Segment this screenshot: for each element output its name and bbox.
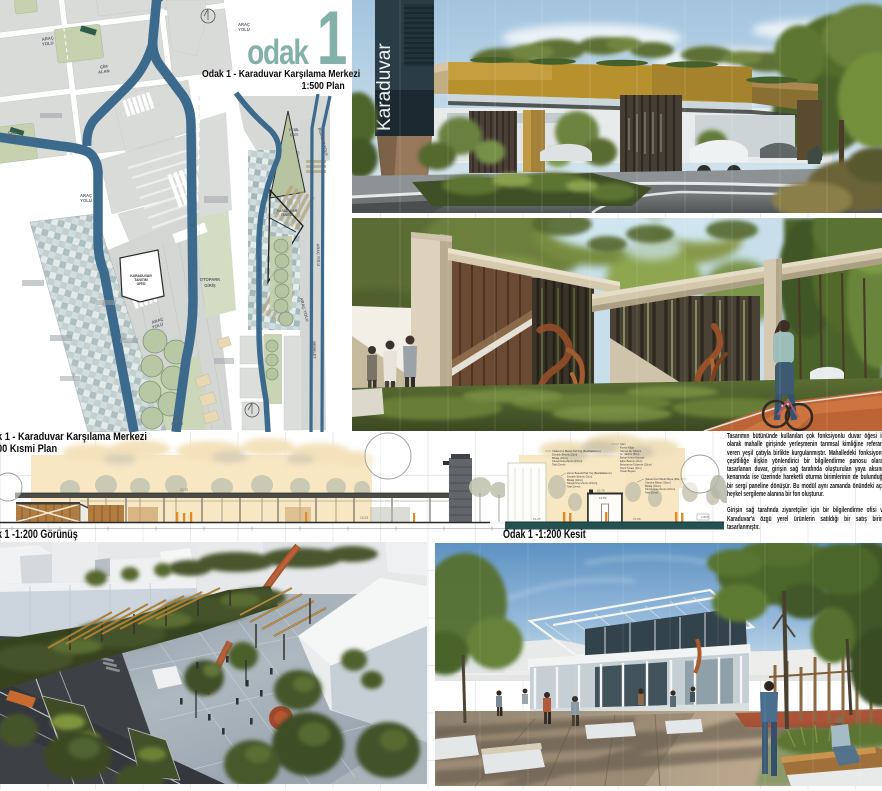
svg-text:10.75: 10.75: [597, 489, 605, 493]
svg-text:Homo Beauld Plak Taş (Beslldak: Homo Beauld Plak Taş (Beslldaklanmı): [567, 471, 612, 475]
svg-text:Isı Yalıtımı (5cm): Isı Yalıtımı (5cm): [620, 452, 639, 456]
svg-text:Süzme Su Yalıtımı: Süzme Su Yalıtımı: [620, 449, 642, 453]
svg-text:OFİSİ: OFİSİ: [137, 282, 146, 286]
svg-text:15.88: 15.88: [633, 517, 641, 521]
svg-text:Donatılı Betonu (2cm): Donatılı Betonu (2cm): [552, 452, 577, 456]
svg-text:Betonarme Döşeme (15cm): Betonarme Döşeme (15cm): [620, 462, 652, 466]
svg-text:2.865: 2.865: [701, 515, 709, 519]
svg-text:Eğim Betonu (4cm): Eğim Betonu (4cm): [620, 459, 642, 463]
svg-text:(Sanat Üzeri Metln Boya (RAL 7: (Sanat Üzeri Metln Boya (RAL 7037): [645, 477, 687, 481]
svg-text:Blokaj (10cm): Blokaj (10cm): [645, 484, 661, 488]
svg-text:ALAN: ALAN: [171, 421, 183, 426]
svg-text:Tabii Zemin: Tabii Zemin: [567, 485, 581, 489]
svg-text:16.25: 16.25: [533, 517, 541, 521]
svg-text:Sıkıştırılmış Zemin (15cm): Sıkıştırılmış Zemin (15cm): [567, 481, 597, 485]
svg-text:Buhar Kesici Katman: Buhar Kesici Katman: [620, 456, 645, 460]
svg-text:Oturtma Beton (10cm): Oturtma Beton (10cm): [645, 480, 671, 484]
svg-text:Kumlu Kağıt: Kumlu Kağıt: [620, 445, 634, 449]
svg-text:16.25: 16.25: [20, 516, 28, 520]
svg-text:15.25: 15.25: [360, 516, 368, 520]
svg-text:TANITIM: TANITIM: [281, 213, 294, 217]
svg-text:Tamir Sıvası (3cm): Tamir Sıvası (3cm): [620, 466, 642, 470]
svg-text:BİSİKLET: BİSİKLET: [312, 341, 317, 359]
svg-text:Tabii Zemin: Tabii Zemin: [645, 491, 659, 495]
svg-text:Çam: Çam: [620, 442, 625, 446]
svg-text:GİRİŞ: GİRİŞ: [204, 283, 216, 288]
svg-text:16.80: 16.80: [599, 496, 607, 500]
svg-text:ÇATI: ÇATI: [290, 133, 299, 137]
svg-text:ARAÇ YOLU: ARAÇ YOLU: [316, 244, 321, 267]
svg-text:Cilalanmış Basalt Pah Taş (Bes: Cilalanmış Basalt Pah Taş (Beslldaklanmı…: [552, 449, 601, 453]
svg-text:Blokaj (10cm): Blokaj (10cm): [552, 456, 568, 460]
svg-text:Sıkıştırılmış Zemin (15cm): Sıkıştırılmış Zemin (15cm): [645, 487, 675, 491]
svg-text:Donatılı Betonu (2cm): Donatılı Betonu (2cm): [567, 474, 592, 478]
svg-text:Blokaj (10cm): Blokaj (10cm): [567, 478, 583, 482]
svg-text:Tavan Boyası: Tavan Boyası: [620, 469, 636, 473]
svg-text:ALAN: ALAN: [6, 135, 18, 140]
svg-text:YOLU: YOLU: [80, 198, 92, 203]
svg-text:YEŞİL: YEŞİL: [289, 128, 301, 132]
svg-text:Sıkıştırılmış Zemin (15cm): Sıkıştırılmış Zemin (15cm): [552, 459, 582, 463]
svg-text:22.70: 22.70: [180, 488, 188, 492]
svg-text:OTOPARK: OTOPARK: [200, 277, 221, 282]
svg-text:Tabii Zemin: Tabii Zemin: [552, 463, 566, 467]
svg-text:YOLU: YOLU: [238, 27, 250, 32]
